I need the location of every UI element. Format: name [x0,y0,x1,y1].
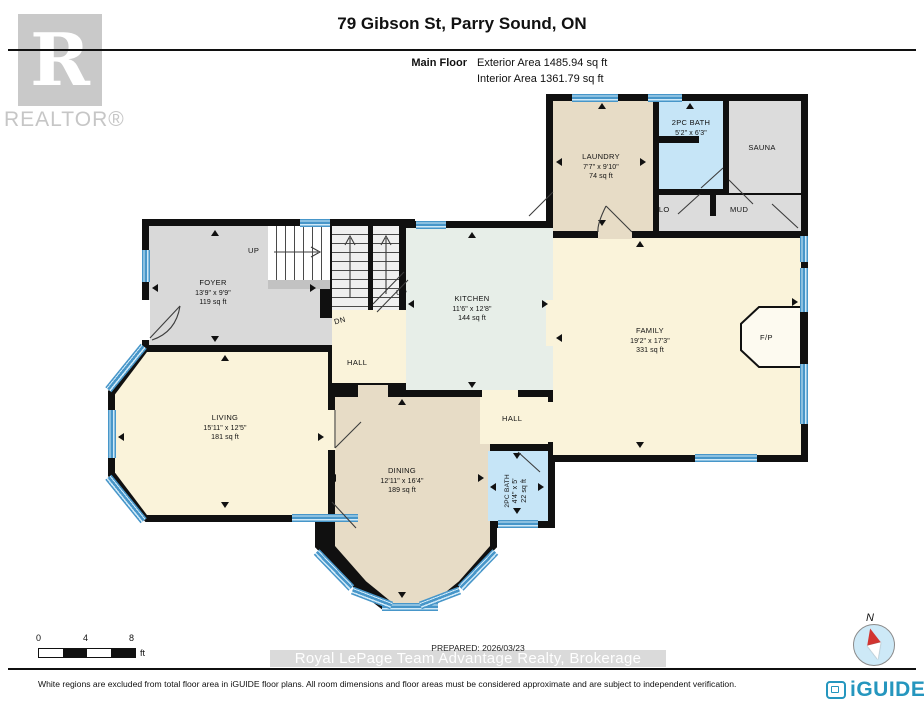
header-divider [8,49,916,51]
direction-arrow [398,399,406,405]
stair-landing [268,280,330,289]
window [695,454,757,462]
opening-foyer-hall [320,318,332,345]
stair-run-left [332,226,368,310]
window [142,250,150,282]
opening-living-dining [328,410,336,450]
window [292,514,358,522]
stair-run-foyer [268,226,330,280]
direction-arrow [556,158,562,166]
direction-arrow [330,474,336,482]
label-hall-lower: HALL [502,414,522,423]
window [648,94,682,102]
label-sauna: SAUNA [722,143,802,154]
direction-arrow [636,241,644,247]
label-mud: MUD [730,205,748,214]
direction-arrow [542,300,548,308]
iguide-camera-icon [826,681,846,699]
floor-label: Main Floor [357,57,467,69]
interior-area: Interior Area 1361.79 sq ft [477,73,604,85]
scale-mid: 4 [83,633,88,643]
prepared-date: PREPARED: 2026/03/23 [16,643,924,653]
label-up-foyer: UP [248,246,259,255]
window [416,221,446,229]
floor-plan-page: R REALTOR® 79 Gibson St, Parry Sound, ON… [0,0,924,717]
direction-arrow [408,300,414,308]
scale-end: 8 [129,633,134,643]
clo-mud-divider [710,190,716,216]
direction-arrow [221,502,229,508]
label-closet: CLO [653,205,670,214]
direction-arrow [538,483,544,491]
direction-arrow [398,592,406,598]
opening-hall-dining [358,385,388,398]
direction-arrow [118,433,124,441]
label-family: FAMILY 19'2" x 17'3" 331 sq ft [590,326,710,356]
window [108,410,116,458]
label-laundry: LAUNDRY 7'7" x 9'10" 74 sq ft [546,152,656,182]
footer-divider [8,668,916,670]
direction-arrow [513,453,521,459]
window [800,268,808,312]
direction-arrow [792,298,798,306]
scale-start: 0 [36,633,41,643]
realtor-wordmark: REALTOR® [4,108,125,132]
direction-arrow [556,334,562,342]
window [800,364,808,424]
window [572,94,618,102]
label-bath-upper: 2PC BATH 5'2" x 6'3" [650,118,732,138]
direction-arrow [211,336,219,342]
direction-arrow [640,158,646,166]
direction-arrow [310,284,316,292]
label-dining: DINING 12'11" x 16'4" 189 sq ft [342,466,462,496]
direction-arrow [468,232,476,238]
disclaimer-text: White regions are excluded from total fl… [38,679,798,689]
label-foyer: FOYER 13'9" x 9'9" 119 sq ft [153,278,273,308]
direction-arrow [636,442,644,448]
direction-arrow [598,103,606,109]
direction-arrow [152,284,158,292]
stair-run-right [373,226,399,310]
window [800,236,808,262]
direction-arrow [211,230,219,236]
label-fireplace: F/P [760,333,773,342]
direction-arrow [598,220,606,226]
page-title: 79 Gibson St, Parry Sound, ON [0,14,924,34]
iguide-camera-lens [831,686,839,693]
realtor-logo: R [18,14,102,106]
direction-arrow [686,103,694,109]
window [300,219,330,227]
realtor-monogram: R [30,24,90,96]
opening-laundry-family [598,230,632,239]
label-living: LIVING 15'11" x 12'5" 181 sq ft [165,413,285,443]
direction-arrow [490,483,496,491]
label-up-main: UP [396,288,407,297]
direction-arrow [318,433,324,441]
iguide-logo: iGUIDE [826,678,924,702]
compass-north-label: N [866,612,874,624]
iguide-wordmark: iGUIDE [850,678,924,702]
direction-arrow [478,474,484,482]
label-kitchen: KITCHEN 11'6" x 12'8" 144 sq ft [412,294,532,324]
opening-kitchen-hall [482,390,518,398]
opening-family-hall [546,402,560,442]
direction-arrow [513,508,521,514]
room-bath-upper [659,101,723,189]
label-hall-upper: HALL [347,358,367,367]
exterior-area: Exterior Area 1485.94 sq ft [477,57,607,69]
direction-arrow [468,382,476,388]
direction-arrow [221,355,229,361]
opening-front-door [142,300,150,340]
